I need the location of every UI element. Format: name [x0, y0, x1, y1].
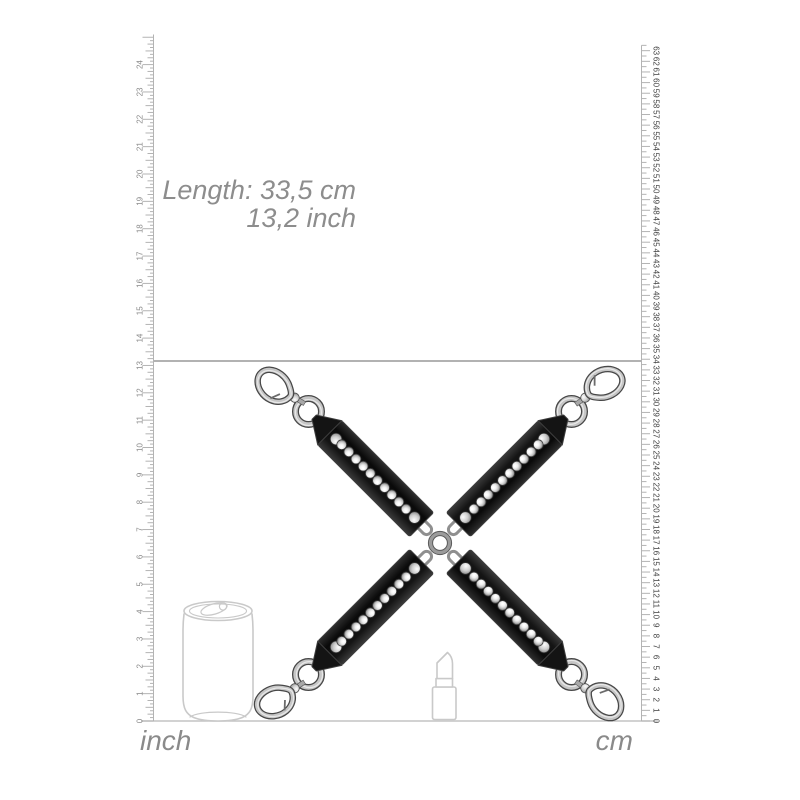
- inch-tick-number: 2: [135, 664, 144, 669]
- cm-tick-number: 46: [652, 227, 661, 236]
- inch-tick-number: 10: [135, 443, 144, 452]
- cm-tick-number: 34: [652, 355, 661, 364]
- strap-arm-bottom-left: [248, 546, 434, 732]
- cm-tick-number: 14: [652, 568, 661, 577]
- inch-tick-number: 3: [135, 636, 144, 641]
- cm-tick-number: 11: [652, 600, 661, 609]
- inch-tick-number: 22: [135, 114, 144, 123]
- cm-tick-number: 33: [652, 365, 661, 374]
- cm-tick-number: 36: [652, 334, 661, 343]
- inch-tick-number: 14: [135, 333, 144, 342]
- lipstick-illustration: [433, 653, 457, 720]
- inch-tick-number: 13: [135, 360, 144, 369]
- inch-tick-number: 24: [135, 60, 144, 69]
- cm-tick-number: 38: [652, 312, 661, 321]
- cm-tick-number: 39: [652, 302, 661, 311]
- product-measurement-diagram: 0123456789101112131415161718192021222324…: [0, 0, 800, 800]
- cm-tick-number: 55: [652, 131, 661, 140]
- strap-arm-top-left: [246, 355, 434, 543]
- cm-tick-number: 44: [652, 248, 661, 257]
- cm-ruler: 0123456789101112131415161718192021222324…: [642, 45, 661, 723]
- cm-tick-number: 28: [652, 419, 661, 428]
- soda-can-illustration: [183, 600, 253, 721]
- inch-tick-number: 11: [135, 415, 144, 424]
- cm-tick-number: 62: [652, 57, 661, 66]
- cm-tick-number: 60: [652, 78, 661, 87]
- cm-tick-number: 7: [652, 644, 661, 649]
- inch-tick-number: 9: [135, 472, 144, 477]
- cm-tick-number: 61: [652, 68, 661, 77]
- cm-tick-number: 42: [652, 270, 661, 279]
- strap-arm-top-right: [446, 354, 631, 539]
- cm-tick-number: 58: [652, 99, 661, 108]
- cm-tick-number: 49: [652, 195, 661, 204]
- cm-tick-number: 5: [652, 666, 661, 671]
- strap-arm-bottom-right: [446, 546, 632, 732]
- center-o-ring-face: [431, 534, 450, 553]
- cm-tick-number: 21: [652, 493, 661, 502]
- inch-unit-label: inch: [140, 725, 191, 756]
- inch-tick-number: 12: [135, 388, 144, 397]
- cm-tick-number: 30: [652, 397, 661, 406]
- cm-tick-number: 0: [652, 719, 661, 724]
- inch-tick-number: 19: [135, 196, 144, 205]
- cm-tick-number: 6: [652, 655, 661, 660]
- length-label-cm: Length: 33,5 cm: [162, 175, 356, 205]
- cm-tick-number: 31: [652, 387, 661, 396]
- cm-tick-number: 56: [652, 121, 661, 130]
- cm-tick-number: 45: [652, 238, 661, 247]
- inch-tick-number: 4: [135, 609, 144, 614]
- inch-tick-number: 0: [135, 718, 144, 723]
- cm-tick-number: 63: [652, 46, 661, 55]
- cm-tick-number: 3: [652, 687, 661, 692]
- inch-tick-number: 20: [135, 169, 144, 178]
- swivel-snap-hook: [252, 671, 313, 724]
- cm-tick-number: 59: [652, 89, 661, 98]
- inch-tick-number: 15: [135, 306, 144, 315]
- cm-tick-number: 12: [652, 589, 661, 598]
- cm-tick-number: 4: [652, 676, 661, 681]
- inch-ruler: 0123456789101112131415161718192021222324: [135, 35, 153, 724]
- inch-tick-number: 21: [135, 142, 144, 151]
- cm-tick-number: 17: [652, 536, 661, 545]
- cm-tick-number: 8: [652, 634, 661, 639]
- cm-tick-number: 52: [652, 163, 661, 172]
- cm-unit-label: cm: [596, 725, 633, 756]
- cm-tick-number: 22: [652, 482, 661, 491]
- cm-tick-number: 2: [652, 697, 661, 702]
- cm-tick-number: 47: [652, 216, 661, 225]
- inch-tick-number: 5: [135, 581, 144, 586]
- cm-tick-number: 43: [652, 259, 661, 268]
- length-label-inch: 13,2 inch: [246, 203, 356, 233]
- cm-tick-number: 40: [652, 291, 661, 300]
- inch-tick-number: 8: [135, 499, 144, 504]
- cm-tick-number: 20: [652, 504, 661, 513]
- cm-tick-number: 25: [652, 451, 661, 460]
- cm-tick-number: 32: [652, 376, 661, 385]
- cm-tick-number: 29: [652, 408, 661, 417]
- cm-tick-number: 10: [652, 610, 661, 619]
- cm-tick-number: 24: [652, 461, 661, 470]
- swivel-snap-hook: [568, 669, 628, 723]
- cm-tick-number: 35: [652, 344, 661, 353]
- cm-tick-number: 18: [652, 525, 661, 534]
- swivel-snap-hook: [251, 365, 312, 417]
- cm-tick-number: 54: [652, 142, 661, 151]
- inch-tick-number: 17: [135, 251, 144, 260]
- cm-tick-number: 27: [652, 429, 661, 438]
- swivel-snap-hook: [567, 361, 627, 415]
- cm-tick-number: 16: [652, 546, 661, 555]
- inch-tick-number: 23: [135, 87, 144, 96]
- cm-tick-number: 48: [652, 206, 661, 215]
- scene: 0123456789101112131415161718192021222324…: [0, 0, 800, 800]
- cm-tick-number: 41: [652, 280, 661, 289]
- cm-tick-number: 15: [652, 557, 661, 566]
- cm-tick-number: 50: [652, 185, 661, 194]
- cm-tick-number: 9: [652, 623, 661, 628]
- cm-tick-number: 51: [652, 174, 661, 183]
- cm-tick-number: 37: [652, 323, 661, 332]
- cm-tick-number: 26: [652, 440, 661, 449]
- inch-tick-number: 1: [135, 691, 144, 696]
- cm-tick-number: 1: [652, 708, 661, 713]
- inch-tick-number: 18: [135, 224, 144, 233]
- cm-tick-number: 19: [652, 514, 661, 523]
- inch-tick-number: 16: [135, 278, 144, 287]
- cm-tick-number: 23: [652, 472, 661, 481]
- inch-tick-number: 6: [135, 554, 144, 559]
- cm-tick-number: 13: [652, 578, 661, 587]
- inch-tick-number: 7: [135, 527, 144, 532]
- cm-tick-number: 53: [652, 153, 661, 162]
- cm-tick-number: 57: [652, 110, 661, 119]
